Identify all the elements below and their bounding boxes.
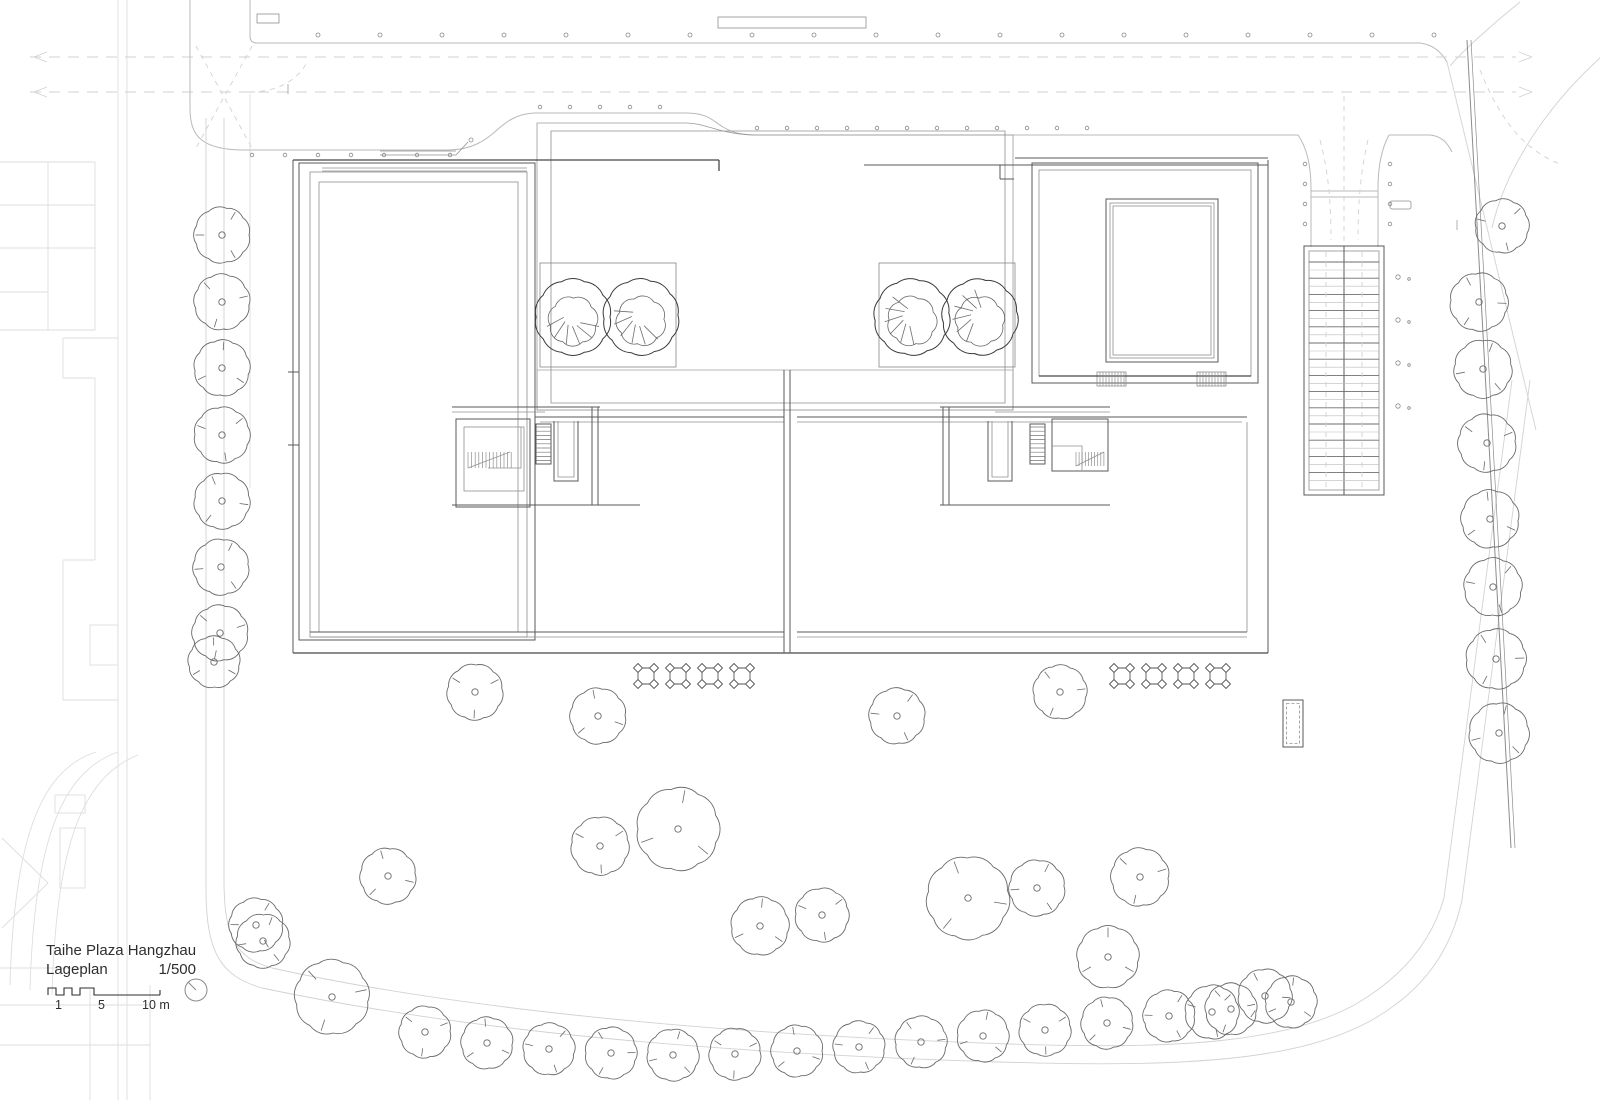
tree-symbol [1450,273,1508,331]
tree-symbol [229,898,283,952]
road-island [718,17,866,28]
tree-symbol [236,914,290,968]
stair-vent [1097,372,1126,386]
site-plan: Taihe Plaza Hangzhau Lageplan 1/500 1 5 … [0,0,1600,1100]
site-boundary [1467,40,1515,848]
tree-symbol [523,1023,575,1075]
tree-symbol [957,1010,1009,1062]
expansion-joint [784,370,790,653]
drawing-name: Lageplan [46,960,108,979]
courtyard-tree-panels [540,263,1015,367]
tree-symbol [1033,665,1087,719]
podium-outline [293,158,1268,653]
tree-symbol [1143,990,1195,1042]
tree-symbol [771,1025,823,1077]
left-tower [288,138,535,640]
tree-symbol [1469,703,1529,763]
planting-marker [1174,664,1199,689]
road-island [257,14,279,23]
tree-symbol [570,688,626,744]
planting-marker [1110,664,1135,689]
dark-tree-symbol [603,279,679,356]
stair-vent [1197,372,1226,386]
dark-tree-symbol [874,279,950,356]
tree-symbol [193,539,249,595]
tree-symbol [194,207,250,263]
building-linework [288,138,1268,653]
dark-tree-symbol [942,279,1019,356]
garden-path [272,380,1512,1046]
tree-symbol [399,1006,451,1058]
planting-marker [666,664,691,689]
road-network [30,0,1600,1064]
planting-marker-layer [634,664,1231,689]
tree-symbol [731,897,789,955]
project-title: Taihe Plaza Hangzhau [46,942,216,960]
tree-symbol [1019,1004,1071,1056]
tree-symbol [571,817,629,875]
tree-symbol [637,787,720,870]
scale-tick-5: 5 [98,998,105,1012]
tree-symbol [447,664,503,720]
bench [1283,700,1303,747]
tree-symbol [360,848,416,904]
tree-symbol [194,473,250,529]
podium-hatch-roof [537,123,1015,412]
roof-plates [310,370,1247,653]
planting-marker [730,664,755,689]
road-island [1390,201,1411,209]
tree-symbol [1077,925,1140,987]
garden-path [262,380,1530,1064]
site-plan-drawing [0,0,1600,1100]
tree-symbol [1009,860,1065,916]
tree-symbol [1454,340,1513,398]
tree-symbol [194,274,250,330]
tree-symbol [1461,490,1519,548]
tree-symbol [795,888,849,942]
pool [1106,199,1218,362]
tree-symbol [188,636,240,688]
speed-bump [1311,191,1378,197]
planting-marker [634,664,659,689]
skylight-band [537,368,1013,412]
tree-symbol [709,1028,761,1080]
tree-symbol [1464,558,1523,616]
planting-marker [698,664,723,689]
tree-symbol [1475,199,1529,253]
dark-tree-symbol [535,279,610,356]
tree-symbol [194,407,250,463]
tree-symbol [1081,997,1133,1049]
right-tower-pool-court [1032,163,1258,386]
scale-tick-10m: 10 m [142,998,170,1012]
tree-symbol [869,688,925,744]
vehicle-ramp [1304,246,1384,495]
tree-symbol [833,1021,885,1073]
tree-symbol [194,340,250,396]
neighbor-context [0,0,250,1100]
sidewalk-path [206,118,272,988]
tree-symbol [585,1027,637,1079]
planting-marker [1142,664,1167,689]
tree-symbol [926,857,1010,940]
tree-symbol [1111,848,1169,906]
planting-marker [1206,664,1231,689]
north-marker-icon [178,975,218,1015]
scale-tick-1: 1 [55,998,62,1012]
tree-symbol [1458,414,1516,472]
courtyard-dark-trees [535,279,1018,356]
tree-symbol [192,605,248,661]
tree-symbol [647,1029,699,1081]
